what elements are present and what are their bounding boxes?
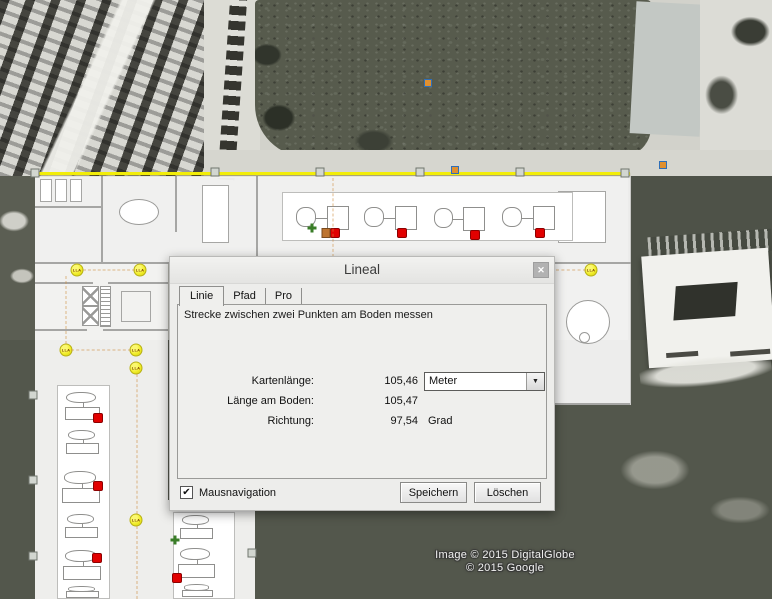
wall bbox=[175, 176, 177, 232]
dialog-titlebar[interactable]: Lineal ✕ bbox=[170, 257, 554, 284]
machine-glyph bbox=[501, 204, 557, 232]
map-viewport[interactable]: { "dialog": { "title": "Lineal", "close_… bbox=[0, 0, 772, 599]
close-icon[interactable]: ✕ bbox=[533, 262, 549, 278]
machine-glyph bbox=[174, 547, 220, 579]
machine-glyph bbox=[295, 204, 351, 232]
tab-linie[interactable]: Linie bbox=[179, 286, 224, 306]
plan-conference-table bbox=[119, 199, 159, 225]
richtung-value: 97,54 bbox=[320, 415, 418, 427]
plan-desk bbox=[55, 179, 67, 202]
map-attribution: Image © 2015 DigitalGlobe © 2015 Google bbox=[415, 549, 595, 575]
machine-glyph bbox=[179, 584, 217, 598]
machine-glyph bbox=[363, 204, 419, 232]
plan-elevator bbox=[82, 286, 99, 306]
wall bbox=[101, 176, 103, 264]
wall bbox=[103, 329, 168, 331]
laenge-am-boden-value: 105,47 bbox=[320, 395, 418, 407]
checkmark-icon: ✔ bbox=[182, 488, 190, 498]
plan-stairs bbox=[100, 286, 111, 327]
machine-glyph bbox=[177, 514, 217, 540]
measure-description: Strecke zwischen zwei Punkten am Boden m… bbox=[178, 305, 546, 321]
machine-glyph bbox=[63, 586, 103, 598]
kartenlaenge-value: 105,46 bbox=[320, 375, 418, 387]
loeschen-button[interactable]: Löschen bbox=[474, 482, 541, 503]
machine-glyph bbox=[62, 513, 102, 539]
dropdown-arrow-icon[interactable]: ▼ bbox=[526, 373, 544, 390]
wall bbox=[35, 329, 87, 331]
plan-elevator bbox=[82, 306, 99, 326]
kartenlaenge-row: Kartenlänge: 105,46 Meter ▼ bbox=[178, 371, 546, 391]
satellite-court bbox=[630, 1, 707, 136]
plan-room bbox=[121, 291, 151, 322]
kartenlaenge-label: Kartenlänge: bbox=[178, 375, 314, 387]
wall bbox=[555, 403, 630, 405]
richtung-label: Richtung: bbox=[178, 415, 314, 427]
building-detail bbox=[666, 351, 698, 358]
unit-dropdown[interactable]: Meter ▼ bbox=[424, 372, 545, 391]
unit-selected-value: Meter bbox=[425, 373, 526, 390]
machine-glyph bbox=[433, 205, 487, 233]
plan-desk bbox=[40, 179, 52, 202]
speichern-button[interactable]: Speichern bbox=[400, 482, 467, 503]
mausnavigation-checkbox[interactable]: ✔ bbox=[180, 486, 193, 499]
tab-pfad[interactable]: Pfad bbox=[224, 288, 266, 305]
laenge-am-boden-label: Länge am Boden: bbox=[178, 395, 314, 407]
wall bbox=[108, 282, 168, 284]
richtung-row: Richtung: 97,54 Grad bbox=[178, 411, 546, 431]
satellite-buildings-topright bbox=[700, 0, 772, 158]
attribution-line2: © 2015 Google bbox=[415, 562, 595, 575]
wall bbox=[35, 206, 102, 208]
tab-bar: Linie Pfad Pro bbox=[179, 287, 302, 305]
dialog-title: Lineal bbox=[170, 262, 554, 277]
richtung-unit: Grad bbox=[424, 415, 546, 427]
machine-glyph bbox=[58, 470, 106, 504]
plan-long-table bbox=[202, 185, 229, 243]
wall bbox=[35, 282, 93, 284]
building-roof-inset bbox=[673, 282, 737, 321]
ruler-measurement-line[interactable] bbox=[35, 172, 630, 175]
satellite-white-building bbox=[641, 248, 772, 369]
laenge-am-boden-row: Länge am Boden: 105,47 bbox=[178, 391, 546, 411]
plan-circle-small bbox=[579, 332, 590, 343]
satellite-field bbox=[255, 0, 651, 157]
satellite-residential-area bbox=[0, 0, 218, 176]
wall bbox=[256, 176, 258, 264]
machine-glyph bbox=[61, 391, 105, 421]
tab-pro[interactable]: Pro bbox=[266, 288, 302, 305]
mausnavigation-label: Mausnavigation bbox=[199, 487, 276, 499]
dialog-footer: ✔ Mausnavigation Speichern Löschen bbox=[180, 482, 541, 503]
plan-desk bbox=[70, 179, 82, 202]
tab-panel: Strecke zwischen zwei Punkten am Boden m… bbox=[177, 304, 547, 479]
attribution-line1: Image © 2015 DigitalGlobe bbox=[415, 549, 595, 562]
lineal-dialog: Lineal ✕ Linie Pfad Pro Strecke zwischen… bbox=[169, 256, 555, 511]
machine-glyph bbox=[59, 549, 107, 581]
machine-glyph bbox=[63, 429, 103, 455]
